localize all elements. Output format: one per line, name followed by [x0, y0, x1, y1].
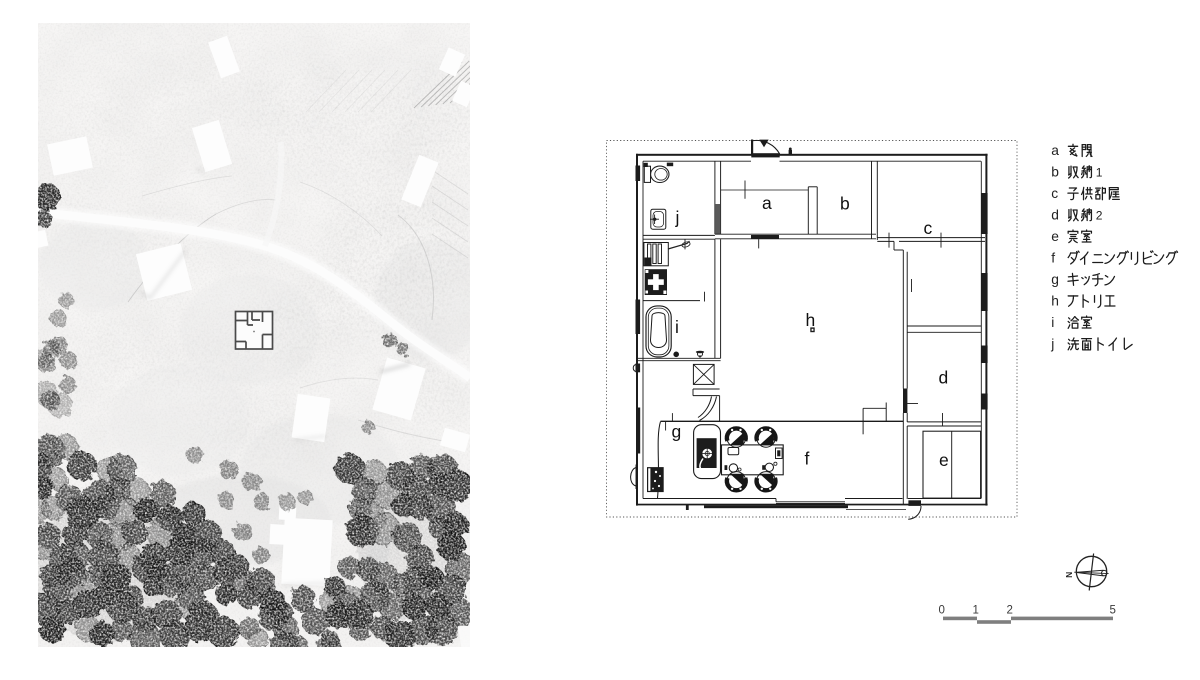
svg-text:1: 1	[1096, 165, 1103, 179]
svg-text:5: 5	[1110, 605, 1116, 617]
svg-text:d: d	[1051, 208, 1059, 223]
svg-text:i: i	[1051, 315, 1054, 330]
svg-text:a: a	[1051, 143, 1059, 158]
svg-text:j: j	[1050, 337, 1054, 352]
svg-text:b: b	[840, 194, 850, 214]
svg-text:f: f	[1051, 251, 1055, 266]
svg-text:f: f	[805, 449, 810, 469]
svg-text:g: g	[672, 422, 682, 442]
svg-text:d: d	[939, 368, 949, 388]
svg-text:h: h	[806, 310, 816, 330]
svg-text:c: c	[1051, 186, 1058, 201]
svg-text:N: N	[1064, 572, 1074, 578]
svg-text:e: e	[1051, 229, 1059, 244]
svg-text:j: j	[675, 208, 680, 228]
svg-text:0: 0	[939, 605, 945, 617]
svg-text:a: a	[762, 193, 772, 213]
svg-text:2: 2	[1096, 208, 1103, 222]
svg-text:i: i	[675, 317, 679, 337]
svg-text:2: 2	[1007, 605, 1013, 617]
svg-text:c: c	[924, 218, 933, 238]
svg-text:1: 1	[973, 605, 979, 617]
svg-text:e: e	[939, 450, 949, 470]
svg-text:g: g	[1051, 272, 1059, 287]
svg-text:b: b	[1051, 165, 1059, 180]
svg-text:h: h	[1051, 294, 1059, 309]
